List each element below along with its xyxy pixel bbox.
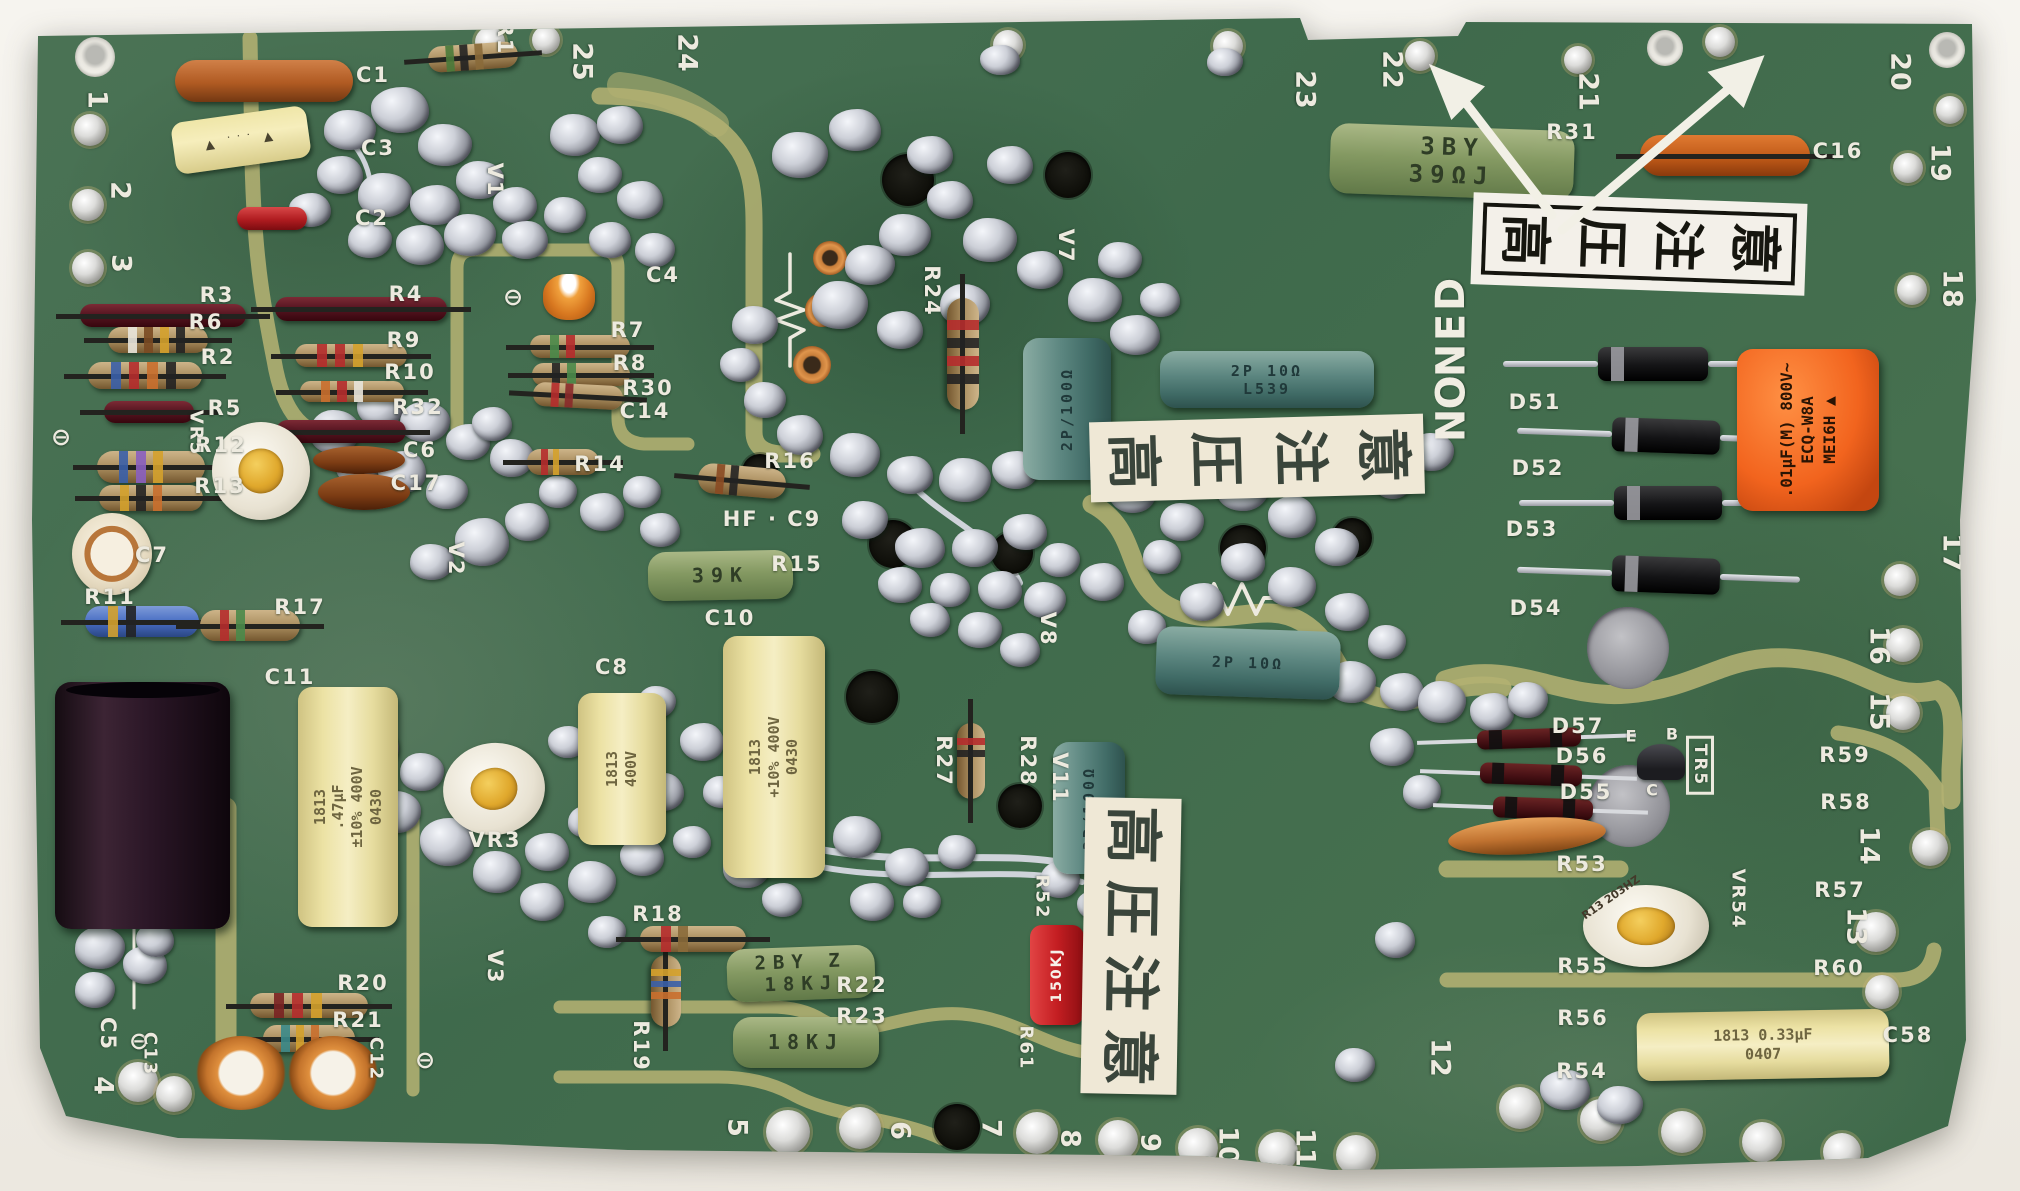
component-print: 39ΩJ — [1408, 161, 1495, 192]
pin-number-15: 15 — [1864, 692, 1895, 732]
color-band — [153, 485, 162, 511]
solder-pad — [1405, 41, 1435, 71]
pin-number-6: 6 — [885, 1121, 916, 1141]
lead-wire — [506, 345, 654, 350]
solder-joint — [597, 106, 643, 144]
component-res — [651, 955, 681, 1027]
lead-wire — [1517, 567, 1612, 576]
solder-joint — [617, 181, 663, 219]
color-band — [128, 327, 137, 353]
silk-label-r52: R52 — [1032, 875, 1053, 920]
silk-label-d51: D51 — [1509, 390, 1562, 414]
solder-joint — [885, 848, 929, 886]
solder-joint — [1143, 540, 1181, 574]
component-blackcap — [55, 682, 230, 929]
component-diode — [1614, 486, 1722, 520]
solder-pad — [1336, 1135, 1376, 1175]
lead-wire — [1503, 361, 1598, 367]
brand-letter: E — [1436, 314, 1469, 341]
lead-wire — [73, 465, 229, 470]
lead-wire — [271, 354, 431, 359]
color-band — [714, 464, 724, 495]
color-band — [166, 362, 176, 389]
solder-joint — [878, 567, 922, 603]
lead-wire — [64, 374, 226, 379]
component-print: 2P 10Ω — [1155, 626, 1341, 700]
color-band — [678, 926, 688, 952]
color-band — [947, 356, 979, 366]
silk-label-vr3: VR3 — [468, 828, 521, 852]
silk-label-hfc9: HF · C9 — [723, 507, 822, 531]
solder-joint — [829, 109, 881, 151]
silk-label-r13: R13 — [194, 474, 245, 498]
solder-pad — [1016, 1112, 1058, 1154]
solder-joint — [680, 723, 724, 761]
solder-joint — [444, 214, 496, 256]
color-band — [474, 43, 484, 70]
component-bead — [543, 274, 595, 320]
color-band — [120, 485, 129, 511]
component-print: 18KJ — [764, 972, 838, 996]
component-ecap: .01μF(M) 800V~ECQ-W8AMEI6H ▲ — [1737, 349, 1879, 511]
pin-number-12: 12 — [1425, 1038, 1456, 1078]
solder-pad — [1661, 1111, 1703, 1153]
solder-joint — [987, 146, 1033, 184]
component-res — [300, 381, 404, 402]
silk-label-r11: R11 — [84, 585, 135, 609]
color-band — [947, 374, 979, 384]
silk-label-r55: R55 — [1557, 954, 1608, 978]
lead-wire — [56, 314, 270, 319]
silk-label-r18: R18 — [632, 902, 683, 926]
silk-label-r20: R20 — [337, 971, 388, 995]
color-band — [176, 327, 185, 353]
component-res — [88, 362, 202, 389]
silk-label-r54: R54 — [1556, 1059, 1607, 1083]
solder-joint — [1325, 593, 1369, 631]
pin-number-24: 24 — [672, 33, 703, 73]
color-band — [661, 926, 671, 952]
solder-pad — [1098, 1120, 1138, 1160]
brand-letter: N — [1436, 343, 1469, 376]
solder-joint — [589, 222, 631, 258]
color-band — [119, 451, 129, 483]
silk-label-: ⊖ — [415, 1046, 437, 1074]
solder-joint — [895, 528, 945, 568]
solder-joint — [978, 571, 1022, 609]
component-diode — [1611, 417, 1720, 455]
silk-label-v11: V11 — [1048, 752, 1072, 803]
component-res — [1640, 135, 1810, 176]
caution-char: 高 — [1103, 433, 1160, 490]
silk-label-r57: R57 — [1814, 878, 1865, 902]
silk-label-r7: R7 — [611, 318, 646, 342]
color-band — [274, 993, 285, 1018]
brand-letter: N — [1436, 409, 1469, 442]
drill-hole — [1587, 607, 1669, 689]
color-band — [550, 383, 559, 407]
component-print: 1813 0.33μF0407 — [1636, 1009, 1889, 1081]
silk-label-r4: R4 — [389, 282, 424, 306]
solder-pad — [1865, 975, 1899, 1009]
cathode-band — [1505, 797, 1518, 818]
arrowhead-right — [1716, 62, 1757, 100]
silk-label-r22: R22 — [836, 973, 887, 997]
silk-label-c16: C16 — [1813, 139, 1864, 163]
silk-label-r9: R9 — [387, 328, 422, 352]
solder-joint — [1040, 543, 1080, 577]
solder-joint — [673, 826, 711, 858]
cathode-band — [1627, 486, 1640, 520]
silk-label-r19: R19 — [629, 1020, 653, 1071]
drill-hole — [934, 1104, 980, 1150]
solder-joint — [1418, 681, 1466, 723]
color-band — [947, 338, 979, 348]
solder-pad — [1912, 830, 1948, 866]
component-oval2 — [313, 446, 405, 474]
silk-label-c8: C8 — [595, 655, 629, 679]
component-greenres: 3BY39ΩJ — [1329, 123, 1575, 201]
solder-joint — [539, 476, 577, 508]
silk-label-v3: V3 — [483, 950, 507, 985]
silk-label-r2: R2 — [201, 345, 236, 369]
component-tealh: 2P 10Ω — [1155, 626, 1341, 700]
lead-wire — [1417, 738, 1477, 744]
pin-number-1: 1 — [82, 90, 113, 110]
solder-joint — [396, 225, 444, 265]
lead-wire — [968, 699, 973, 823]
component-res — [104, 401, 194, 423]
solder-joint — [502, 221, 548, 259]
silk-label-r17: R17 — [274, 595, 325, 619]
silk-label-d55: D55 — [1560, 780, 1613, 804]
solder-joint — [762, 883, 802, 917]
solder-joint — [1368, 625, 1406, 659]
mounting-hole — [75, 37, 115, 77]
color-band — [337, 381, 346, 402]
solder-pad — [839, 1107, 881, 1149]
color-band — [445, 45, 455, 72]
solder-pad — [1499, 1087, 1541, 1129]
cathode-band — [1624, 556, 1638, 592]
solder-joint — [1098, 242, 1142, 278]
solder-joint — [580, 493, 624, 531]
pin-number-18: 18 — [1937, 269, 1968, 309]
silk-label-r60: R60 — [1813, 956, 1864, 980]
silk-label-v1: V1 — [483, 163, 507, 198]
lead-wire — [176, 624, 324, 629]
lead-wire — [616, 937, 770, 942]
lead-wire — [1433, 803, 1493, 809]
color-band — [108, 606, 118, 637]
solder-joint — [1508, 682, 1548, 718]
circuit-board: DENON 39K2BY Z18KJ18KJ3BY39ΩJ2P/100Ω2P 1… — [0, 0, 2020, 1191]
component-print: 1813400V — [578, 693, 666, 845]
drill-hole — [1045, 152, 1091, 198]
component-ring — [195, 1036, 287, 1110]
arrowhead-left — [1437, 72, 1477, 112]
component-ycap: 1813+10% 400V0430 — [723, 636, 825, 878]
solder-joint — [938, 835, 976, 869]
solder-joint — [75, 972, 115, 1008]
pin-number-19: 19 — [1925, 143, 1956, 183]
lead-wire — [1420, 769, 1480, 775]
silk-label-c6: C6 — [403, 438, 437, 462]
caution-sticker-2: 高圧注意 — [1481, 203, 1797, 286]
silk-label-: ⊖ — [51, 423, 73, 451]
solder-joint — [850, 883, 894, 921]
solder-joint — [544, 197, 586, 233]
lead-wire — [84, 338, 232, 343]
solder-pad — [1897, 275, 1927, 305]
cathode-band — [1492, 763, 1505, 784]
solder-pad — [1884, 564, 1916, 596]
component-res — [99, 485, 203, 511]
caution-char: 意 — [1353, 426, 1410, 483]
component-res — [947, 298, 979, 410]
component-pill — [237, 207, 307, 230]
copper-ring-pad — [813, 241, 847, 275]
silk-label-c17: C17 — [391, 471, 442, 495]
brand-logo-denon: DENON — [1426, 278, 1478, 448]
solder-joint — [75, 927, 125, 969]
solder-joint — [418, 124, 472, 166]
silk-label-c58: C58 — [1883, 1023, 1934, 1047]
color-band — [160, 327, 169, 353]
caution-char: 注 — [1270, 428, 1327, 485]
color-band — [147, 362, 157, 389]
solder-joint — [588, 916, 626, 948]
silk-label-vr5: VR5 — [186, 410, 207, 456]
silk-label-c: C — [1646, 781, 1660, 800]
solder-pad — [1564, 46, 1592, 74]
color-band — [126, 606, 136, 637]
silk-label-r15: R15 — [771, 552, 822, 576]
silk-label-r6: R6 — [189, 310, 224, 334]
solder-joint — [952, 529, 998, 567]
lead-wire — [960, 274, 965, 434]
silk-label-c11: C11 — [265, 665, 316, 689]
silk-label-r8: R8 — [613, 351, 648, 375]
solder-joint — [400, 753, 444, 791]
pin-number-7: 7 — [976, 1119, 1007, 1139]
caution-sticker-3: 高圧注意 — [1080, 797, 1181, 1095]
copper-ring-pad — [793, 346, 831, 384]
pin-number-2: 2 — [105, 181, 136, 201]
solder-joint — [1110, 315, 1160, 355]
caution-char: 高 — [1103, 806, 1162, 865]
pin-number-13: 13 — [1841, 907, 1872, 947]
solder-joint — [845, 245, 895, 285]
color-band — [947, 320, 979, 330]
color-band — [144, 327, 153, 353]
caution-char: 圧 — [1102, 879, 1161, 938]
solder-joint — [1160, 503, 1204, 541]
pin-number-8: 8 — [1055, 1129, 1086, 1149]
lead-wire — [674, 473, 810, 490]
solder-joint — [568, 861, 616, 903]
lead-wire — [1616, 154, 1834, 159]
solder-joint — [1080, 563, 1124, 601]
lead-wire — [276, 390, 428, 395]
pcb-photo: DENON 39K2BY Z18KJ18KJ3BY39ΩJ2P/100Ω2P 1… — [0, 0, 2020, 1191]
solder-joint — [772, 132, 828, 178]
solder-joint — [472, 407, 512, 441]
silk-label-c4: C4 — [646, 263, 680, 287]
pin-number-5: 5 — [722, 1118, 753, 1138]
solder-pad — [1823, 1133, 1861, 1171]
color-band — [281, 1025, 289, 1052]
solder-joint — [550, 114, 600, 156]
drill-hole — [846, 671, 898, 723]
silk-label-r24: R24 — [920, 265, 944, 316]
solder-joint — [980, 45, 1020, 75]
color-band — [651, 969, 681, 975]
solder-joint — [910, 603, 950, 637]
solder-pad — [1936, 96, 1964, 124]
solder-pad — [74, 114, 106, 146]
solder-pad — [72, 252, 104, 284]
component-ycap: 1813 0.33μF0407 — [1636, 1009, 1889, 1081]
silk-label-d52: D52 — [1512, 456, 1565, 480]
solder-joint — [887, 456, 933, 494]
silk-label-r58: R58 — [1820, 790, 1871, 814]
silk-label-r61: R61 — [1016, 1026, 1037, 1071]
component-res — [640, 926, 746, 952]
brand-letter: D — [1436, 278, 1469, 311]
color-band — [136, 451, 146, 483]
silk-label-r28: R28 — [1016, 735, 1040, 786]
component-print: 2P 10ΩL539 — [1160, 351, 1374, 408]
solder-pad — [1742, 1122, 1782, 1162]
solder-joint — [525, 833, 569, 871]
caution-char: 注 — [1650, 218, 1704, 272]
color-band — [153, 451, 163, 483]
silk-label-b: B — [1666, 725, 1680, 744]
component-diode — [1611, 555, 1720, 595]
silk-label-d57: D57 — [1552, 714, 1605, 738]
pin-number-17: 17 — [1937, 533, 1968, 573]
silk-label-c14: C14 — [620, 399, 671, 423]
color-band — [553, 449, 559, 475]
color-band — [136, 485, 145, 511]
silk-label-c12: C12 — [366, 1037, 387, 1081]
solder-joint — [578, 157, 622, 193]
solder-joint — [640, 513, 680, 547]
silk-label-r14: R14 — [574, 452, 625, 476]
brand-letter: O — [1436, 376, 1469, 410]
color-band — [311, 993, 322, 1018]
solder-joint — [903, 886, 941, 918]
color-band — [460, 44, 470, 71]
component-redcyl: 150KJ — [1030, 925, 1084, 1025]
solder-pad — [1893, 153, 1923, 183]
solder-joint — [520, 883, 564, 921]
solder-joint — [635, 233, 675, 267]
silk-label-e: E — [1626, 727, 1639, 746]
solder-joint — [930, 573, 970, 607]
cathode-band — [1611, 347, 1624, 381]
solder-joint — [1221, 543, 1265, 581]
silk-label-vr54: VR54 — [1728, 869, 1749, 930]
component-print: 39K — [692, 564, 750, 588]
silk-label-r53: R53 — [1556, 852, 1607, 876]
solder-joint — [623, 476, 661, 508]
silk-label-r16: R16 — [764, 449, 815, 473]
mounting-hole — [1647, 30, 1683, 66]
caution-char: 圧 — [1574, 216, 1628, 270]
solder-joint — [732, 306, 778, 344]
silk-label-c10: C10 — [705, 606, 756, 630]
board-shadow-wrap: DENON 39K2BY Z18KJ18KJ3BY39ΩJ2P/100Ω2P 1… — [0, 0, 2020, 1191]
color-band — [728, 465, 738, 496]
pin-number-4: 4 — [88, 1076, 119, 1096]
silk-label-c7: C7 — [135, 543, 169, 567]
solder-joint — [744, 382, 786, 418]
pin-number-3: 3 — [106, 254, 137, 274]
component-c3cap — [170, 105, 312, 175]
solder-joint — [812, 281, 868, 329]
solder-joint — [927, 181, 973, 219]
solder-pad — [72, 189, 104, 221]
component-ycap: 1813.47μF±10% 400V0430 — [298, 687, 398, 927]
lead-wire — [251, 307, 471, 312]
silk-label-c3: C3 — [361, 136, 395, 160]
solder-joint — [1335, 1048, 1375, 1082]
silk-label-: ⊖ — [503, 283, 525, 311]
silk-label-v2: V2 — [444, 542, 468, 577]
silk-label-r32: R32 — [392, 395, 443, 419]
silk-label-r59: R59 — [1819, 743, 1870, 767]
component-print: 3BY — [1420, 133, 1485, 163]
solder-joint — [939, 458, 991, 502]
color-band — [321, 381, 330, 402]
silk-label-r10: R10 — [384, 360, 435, 384]
solder-pad — [156, 1076, 192, 1112]
solder-joint — [505, 503, 549, 541]
solder-pad — [1705, 27, 1735, 57]
component-res — [85, 606, 199, 637]
pin-number-22: 22 — [1377, 50, 1408, 90]
color-band — [353, 344, 363, 367]
pin-number-23: 23 — [1290, 70, 1321, 110]
solder-joint — [833, 816, 881, 858]
solder-joint — [1315, 528, 1359, 566]
solder-joint — [1268, 496, 1316, 538]
solder-joint — [317, 156, 363, 194]
solder-joint — [963, 218, 1017, 262]
silk-label-v7: V7 — [1054, 229, 1078, 264]
pin-number-11: 11 — [1290, 1128, 1321, 1168]
solder-joint — [1370, 728, 1414, 766]
color-band — [317, 344, 327, 367]
color-band — [550, 335, 559, 358]
silk-label-r31: R31 — [1546, 120, 1597, 144]
color-band — [651, 992, 681, 998]
silk-label-c2: C2 — [355, 206, 389, 230]
solder-joint — [1140, 283, 1180, 317]
component-res — [957, 723, 985, 799]
color-band — [565, 383, 574, 407]
lead-wire — [404, 50, 542, 65]
component-tealh: 2P 10ΩL539 — [1160, 351, 1374, 408]
solder-joint — [877, 311, 923, 349]
solder-joint — [1375, 922, 1415, 958]
silk-label-d53: D53 — [1506, 517, 1559, 541]
component-print: 1813+10% 400V0430 — [723, 636, 825, 878]
component-print: 18KJ — [768, 1031, 844, 1054]
caution-char: 注 — [1101, 953, 1160, 1012]
